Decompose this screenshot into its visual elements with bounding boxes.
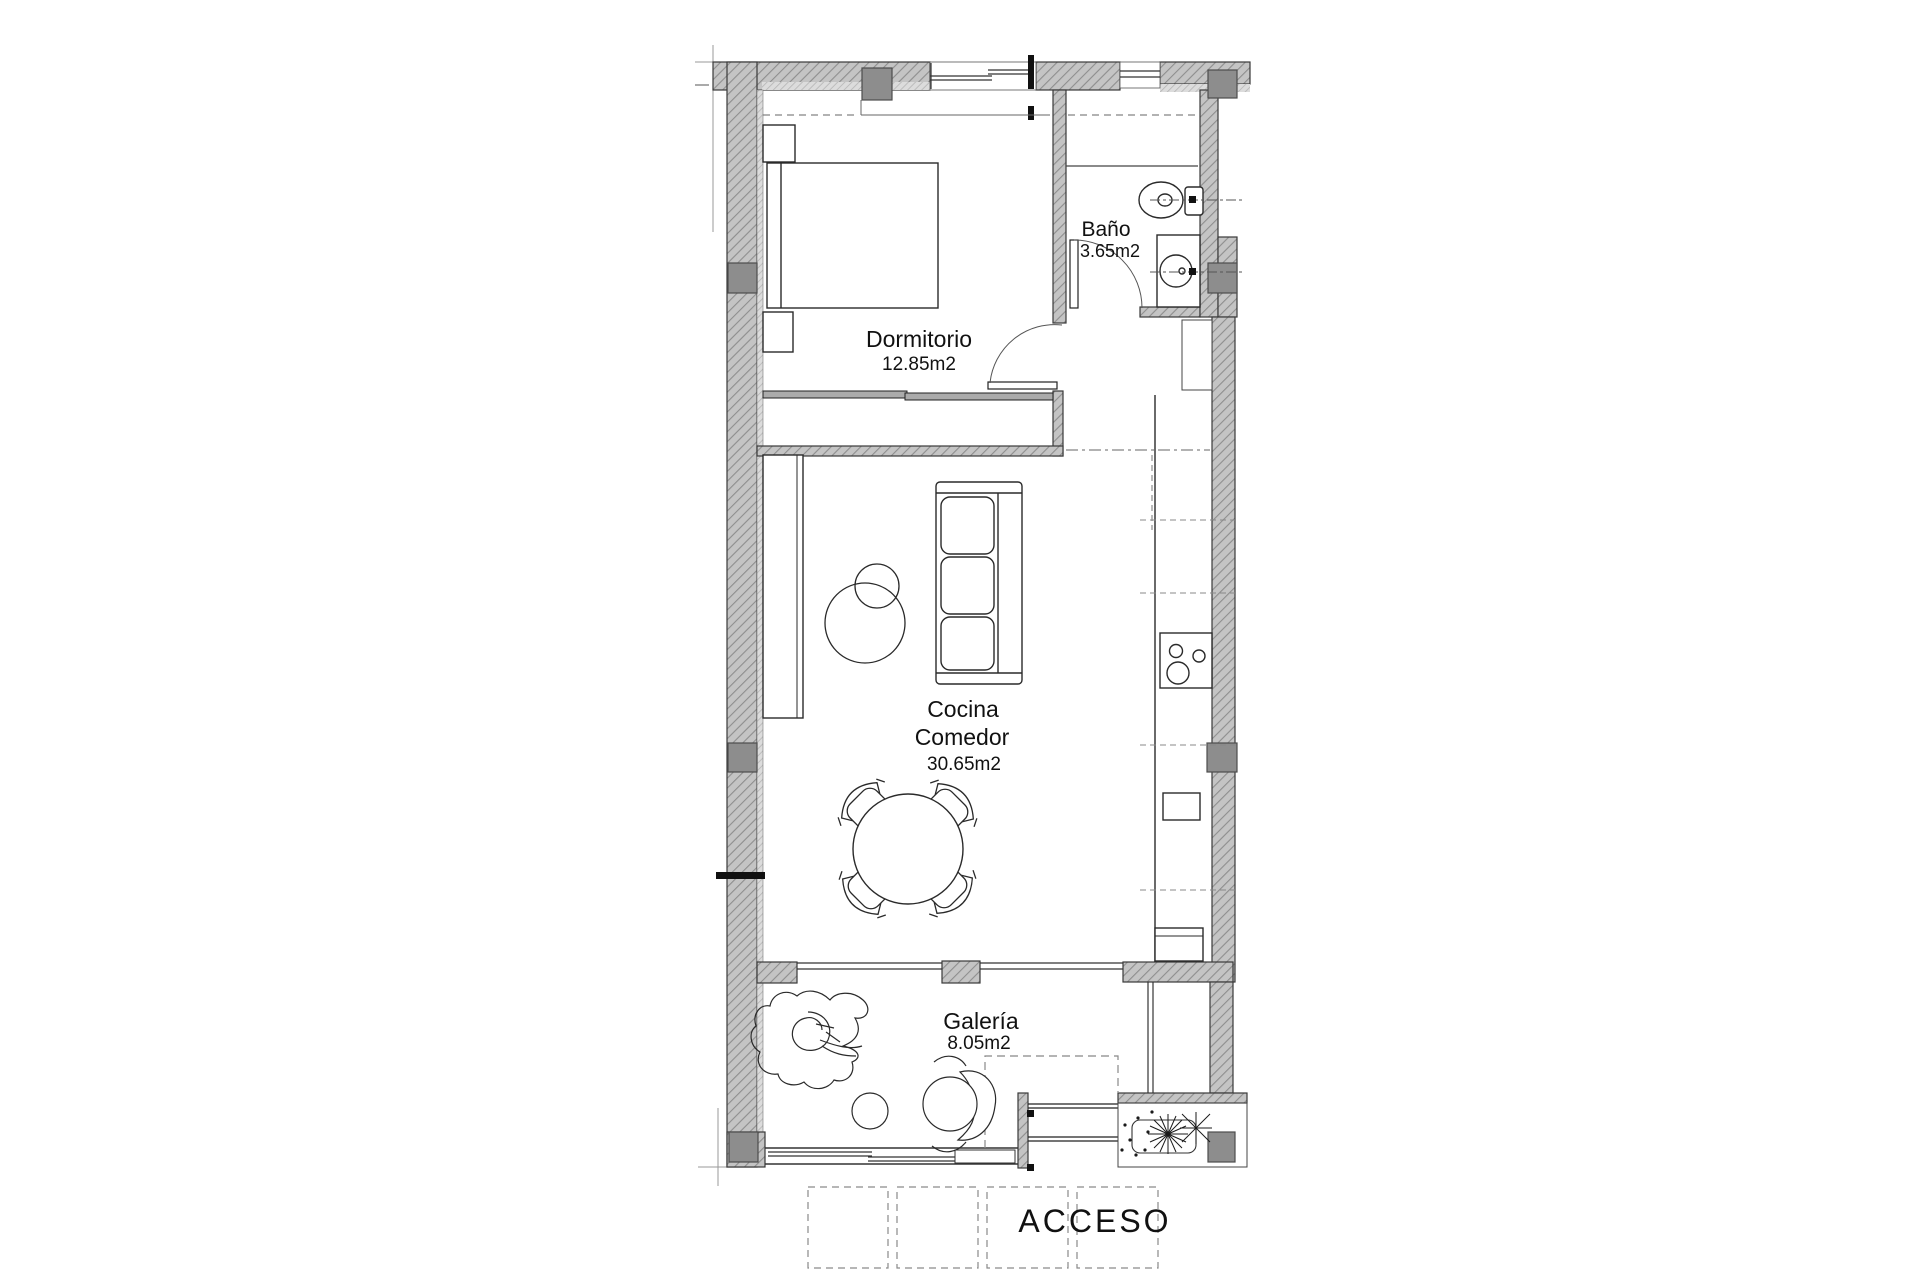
sink-basin bbox=[1160, 255, 1192, 287]
floor-plan-drawing: Dormitorio 12.85m2 Baño 3.65m2 Cocina Co… bbox=[0, 0, 1920, 1280]
gallery-dashed-outline bbox=[985, 1056, 1118, 1148]
nightstand bbox=[763, 312, 793, 352]
bedroom-bath-wall bbox=[1053, 90, 1066, 323]
column bbox=[728, 743, 757, 772]
entrance-jamb bbox=[1018, 1093, 1028, 1168]
window-frame-tick bbox=[1028, 106, 1034, 120]
label-bano: Baño bbox=[1081, 218, 1130, 241]
column bbox=[1208, 70, 1237, 98]
gallery-wall-right-block bbox=[1123, 962, 1233, 982]
kitchen-sink bbox=[1163, 793, 1200, 820]
column bbox=[728, 263, 757, 293]
bedroom-door-arc bbox=[990, 325, 1062, 383]
column bbox=[1208, 263, 1237, 293]
living-furniture bbox=[763, 455, 1022, 926]
left-wall bbox=[727, 62, 757, 1167]
label-cocina-area: 30.65m2 bbox=[927, 754, 1001, 775]
bedroom-furniture bbox=[763, 125, 938, 352]
dining-table bbox=[853, 794, 963, 904]
bedroom-door bbox=[988, 325, 1062, 389]
bedroom-door-leaf bbox=[988, 382, 1057, 389]
bathroom-door-leaf bbox=[1070, 240, 1078, 308]
porch-glazing bbox=[1148, 982, 1153, 1093]
bath-bottom-wall bbox=[1140, 307, 1200, 317]
label-acceso: ACCESO bbox=[1018, 1203, 1171, 1239]
gallery-wall-left-block bbox=[757, 962, 797, 983]
cooktop bbox=[1160, 633, 1212, 688]
entrance-door bbox=[1027, 1104, 1118, 1171]
column bbox=[729, 1132, 758, 1162]
side-table-small bbox=[855, 564, 899, 608]
label-dormitorio-area: 12.85m2 bbox=[882, 354, 956, 375]
porch-band bbox=[1118, 1093, 1247, 1103]
label-dormitorio: Dormitorio bbox=[866, 326, 972, 352]
dining-set bbox=[830, 771, 986, 927]
gallery-window bbox=[765, 1148, 1018, 1164]
duct-shaft bbox=[1182, 320, 1212, 390]
armchair bbox=[923, 1056, 996, 1152]
bed bbox=[767, 163, 938, 308]
label-cocina: Cocina bbox=[927, 696, 999, 722]
right-wall-lower bbox=[1212, 317, 1235, 982]
paving-tile bbox=[808, 1187, 888, 1268]
reference-lines bbox=[695, 45, 727, 1186]
nightstand bbox=[763, 125, 795, 162]
sofa bbox=[936, 482, 1022, 684]
label-galeria-area: 8.05m2 bbox=[947, 1033, 1010, 1054]
appliance bbox=[1155, 928, 1203, 961]
label-comedor: Comedor bbox=[915, 724, 1010, 750]
top-wall-pier bbox=[1036, 62, 1120, 90]
room-labels: Dormitorio 12.85m2 Baño 3.65m2 Cocina Co… bbox=[866, 218, 1172, 1239]
column bbox=[1207, 743, 1237, 772]
paving-tile bbox=[897, 1187, 978, 1268]
column bbox=[862, 68, 892, 100]
floor-plan-page: Dormitorio 12.85m2 Baño 3.65m2 Cocina Co… bbox=[0, 0, 1920, 1280]
gallery-table bbox=[852, 1093, 888, 1129]
closet-sliding-doors bbox=[763, 391, 1053, 400]
gallery-wall-column bbox=[942, 961, 980, 983]
planter-column bbox=[1208, 1132, 1235, 1162]
window-frame-tick bbox=[1028, 55, 1034, 89]
left-wall-finish bbox=[757, 90, 763, 1148]
plant bbox=[751, 991, 868, 1089]
porch-right-wall bbox=[1210, 982, 1233, 1093]
section-mark bbox=[716, 872, 765, 879]
label-galeria: Galería bbox=[943, 1008, 1019, 1034]
label-bano-area: 3.65m2 bbox=[1080, 241, 1140, 261]
bath-window bbox=[1120, 62, 1160, 88]
side-table bbox=[825, 583, 905, 663]
